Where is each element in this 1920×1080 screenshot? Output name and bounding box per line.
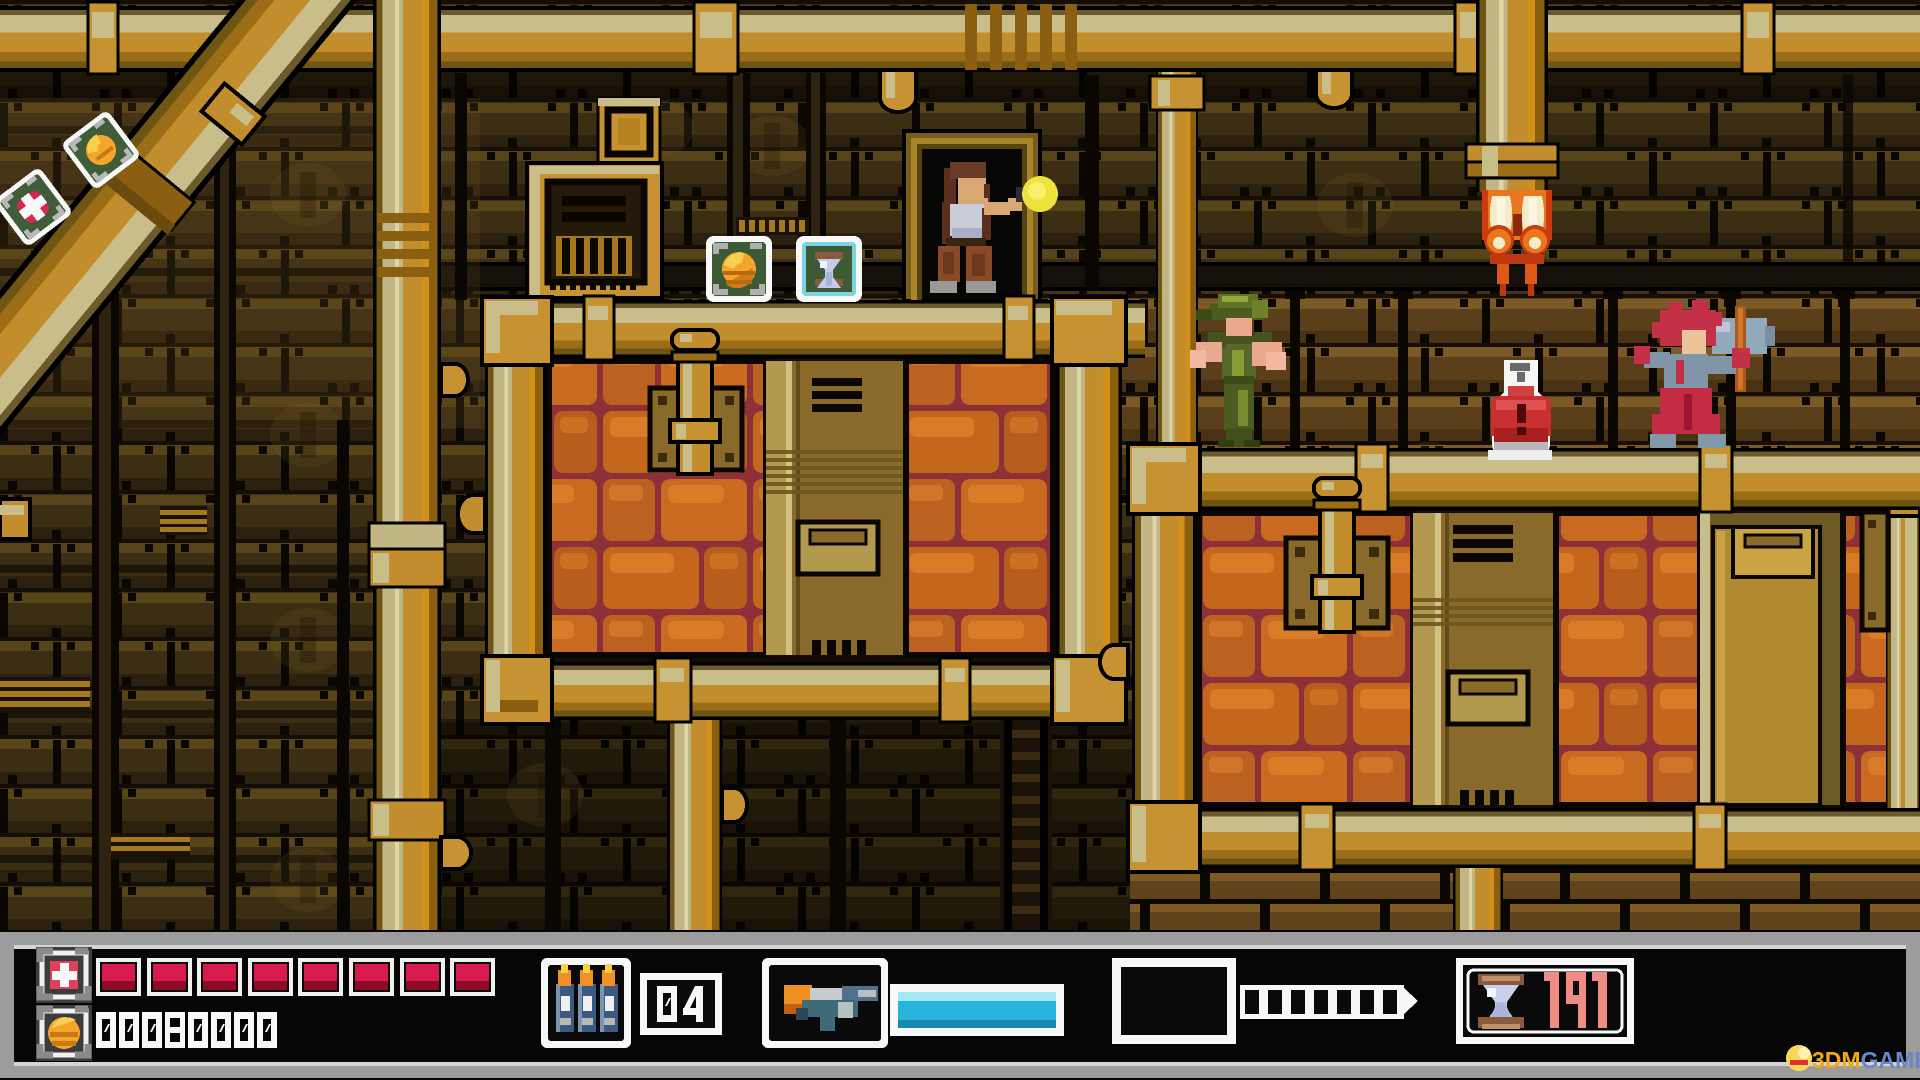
svg-text:3DMGAME: 3DMGAME <box>1812 1047 1920 1073</box>
